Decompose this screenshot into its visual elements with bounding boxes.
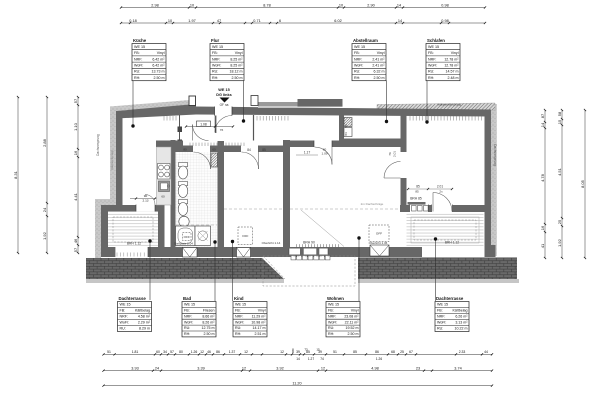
svg-text:6.42 m²: 6.42 m² xyxy=(152,64,165,68)
svg-text:2.50 m: 2.50 m xyxy=(348,332,359,336)
svg-text:8.66 m²: 8.66 m² xyxy=(202,314,215,318)
svg-text:FB:: FB: xyxy=(184,309,190,313)
svg-text:8.26 m²: 8.26 m² xyxy=(202,320,215,324)
svg-text:12: 12 xyxy=(242,366,246,370)
svg-text:Dachterrasse: Dachterrasse xyxy=(436,296,464,301)
svg-text:WE 15: WE 15 xyxy=(218,88,229,92)
svg-text:23.08 m²: 23.08 m² xyxy=(344,314,359,318)
svg-text:RH:: RH: xyxy=(134,76,140,80)
svg-text:2.41 m²: 2.41 m² xyxy=(372,64,385,68)
svg-text:Stellplatz 2.04: Stellplatz 2.04 xyxy=(174,242,193,246)
svg-text:BRH 1.12: BRH 1.12 xyxy=(445,241,459,245)
svg-text:3.39: 3.39 xyxy=(197,366,204,370)
svg-text:WoFl:: WoFl: xyxy=(235,320,244,324)
svg-text:RU:: RU: xyxy=(184,326,190,330)
svg-text:OFF: OFF xyxy=(242,234,248,238)
svg-text:WE 15: WE 15 xyxy=(328,303,339,307)
svg-text:2.29 m²: 2.29 m² xyxy=(138,321,151,325)
svg-text:51: 51 xyxy=(333,350,337,354)
svg-text:60: 60 xyxy=(212,148,216,152)
svg-text:RU:: RU: xyxy=(437,327,443,331)
svg-text:16: 16 xyxy=(540,225,545,230)
svg-text:23: 23 xyxy=(416,366,420,370)
svg-text:Vinyl: Vinyl xyxy=(258,309,266,313)
svg-text:3.13 m²: 3.13 m² xyxy=(455,321,468,325)
svg-text:Dachvorsprung: Dachvorsprung xyxy=(110,150,114,169)
svg-text:41: 41 xyxy=(540,243,545,248)
svg-text:WoFl:: WoFl: xyxy=(134,64,143,68)
svg-text:14: 14 xyxy=(398,19,402,23)
svg-text:85: 85 xyxy=(353,350,357,354)
svg-text:80: 80 xyxy=(183,148,187,152)
svg-text:BRH 1.12: BRH 1.12 xyxy=(127,242,141,246)
svg-text:67: 67 xyxy=(409,350,413,354)
svg-text:Bad: Bad xyxy=(183,296,191,301)
svg-text:3.93: 3.93 xyxy=(131,366,138,370)
svg-text:RH:: RH: xyxy=(328,332,334,336)
svg-text:24: 24 xyxy=(155,366,159,370)
svg-text:8.25 m²: 8.25 m² xyxy=(230,64,243,68)
svg-text:1.81: 1.81 xyxy=(132,350,139,354)
svg-text:57: 57 xyxy=(73,247,78,252)
svg-text:WE 15: WE 15 xyxy=(134,45,145,49)
svg-text:1.09: 1.09 xyxy=(321,152,327,156)
svg-text:14.57 m: 14.57 m xyxy=(446,70,459,74)
svg-text:2.98: 2.98 xyxy=(151,3,158,7)
svg-text:WoFl:: WoFl: xyxy=(328,320,337,324)
svg-text:2.48 m: 2.48 m xyxy=(448,76,459,80)
svg-text:4.98: 4.98 xyxy=(371,366,378,370)
svg-text:2.33: 2.33 xyxy=(459,350,466,354)
svg-text:NRF:: NRF: xyxy=(120,315,128,319)
svg-text:RH:: RH: xyxy=(184,332,190,336)
svg-text:FB:: FB: xyxy=(134,51,140,55)
svg-text:1.92: 1.92 xyxy=(42,231,47,240)
svg-text:WoFl:: WoFl: xyxy=(212,64,221,68)
svg-text:WE 15: WE 15 xyxy=(437,303,448,307)
svg-text:80: 80 xyxy=(179,350,183,354)
svg-text:RU:: RU: xyxy=(134,70,140,74)
svg-text:25: 25 xyxy=(400,350,404,354)
svg-text:84: 84 xyxy=(247,148,251,152)
svg-text:OFF: OFF xyxy=(376,232,382,236)
svg-text:WoFl:: WoFl: xyxy=(354,64,363,68)
svg-text:Kind: Kind xyxy=(234,296,244,301)
svg-text:74: 74 xyxy=(320,357,324,361)
svg-text:76: 76 xyxy=(220,128,224,132)
svg-text:11.29 m²: 11.29 m² xyxy=(252,314,267,318)
svg-text:RU:: RU: xyxy=(120,327,126,331)
svg-text:10.22 m: 10.22 m xyxy=(455,327,468,331)
svg-text:RH:: RH: xyxy=(212,76,218,80)
svg-text:BRH 90: BRH 90 xyxy=(303,240,315,244)
svg-text:Wohnen: Wohnen xyxy=(327,296,344,301)
svg-text:RU:: RU: xyxy=(235,326,241,330)
svg-text:Vinyl: Vinyl xyxy=(235,51,243,55)
svg-text:WE 15: WE 15 xyxy=(120,303,131,307)
svg-text:6.42 m²: 6.42 m² xyxy=(152,57,165,61)
svg-text:Fliesen: Fliesen xyxy=(203,309,215,313)
svg-text:NRF:: NRF: xyxy=(354,57,362,61)
svg-text:12.78 m²: 12.78 m² xyxy=(444,64,459,68)
svg-text:2.50 m: 2.50 m xyxy=(232,76,243,80)
svg-text:Vinyl: Vinyl xyxy=(451,51,459,55)
svg-text:8.78: 8.78 xyxy=(263,3,270,7)
svg-text:Oberlicht 1.14: Oberlicht 1.14 xyxy=(262,241,281,245)
svg-text:18.12 m: 18.12 m xyxy=(230,70,243,74)
svg-text:0.18: 0.18 xyxy=(129,19,136,23)
svg-text:NRF:: NRF: xyxy=(235,314,243,318)
svg-text:RH:: RH: xyxy=(354,76,360,80)
svg-text:1.97: 1.97 xyxy=(188,19,195,23)
svg-text:RU:: RU: xyxy=(354,70,360,74)
svg-text:FB:: FB: xyxy=(428,51,434,55)
svg-text:WoFl:: WoFl: xyxy=(437,321,446,325)
svg-text:68: 68 xyxy=(391,350,395,354)
svg-text:0.71: 0.71 xyxy=(253,19,260,23)
svg-text:84: 84 xyxy=(344,132,348,136)
svg-text:12: 12 xyxy=(244,350,248,354)
svg-text:34: 34 xyxy=(163,350,167,354)
svg-text:WoFl:: WoFl: xyxy=(120,321,129,325)
svg-text:4.51: 4.51 xyxy=(557,167,562,176)
svg-text:4.58 m²: 4.58 m² xyxy=(138,315,151,319)
svg-text:4.41: 4.41 xyxy=(73,192,78,201)
svg-text:Dachvorsprung: Dachvorsprung xyxy=(493,144,497,166)
svg-text:WoFl:: WoFl: xyxy=(428,64,437,68)
svg-text:Kältbelag: Kältbelag xyxy=(135,309,150,313)
svg-text:13.73 m: 13.73 m xyxy=(152,70,165,74)
svg-text:WE 15: WE 15 xyxy=(235,303,246,307)
svg-text:FB:: FB: xyxy=(235,309,241,313)
svg-text:85: 85 xyxy=(415,190,419,194)
svg-text:47: 47 xyxy=(217,19,221,23)
svg-text:14: 14 xyxy=(397,3,401,7)
svg-text:2.51 m: 2.51 m xyxy=(255,332,266,336)
svg-text:87: 87 xyxy=(540,113,545,118)
svg-text:8.31: 8.31 xyxy=(13,170,18,179)
svg-text:4.78: 4.78 xyxy=(540,173,545,182)
svg-text:NRF:: NRF: xyxy=(212,57,220,61)
svg-text:58: 58 xyxy=(557,111,562,116)
svg-text:86: 86 xyxy=(375,350,379,354)
svg-text:8.25 m²: 8.25 m² xyxy=(230,57,243,61)
svg-text:OFF: OFF xyxy=(184,235,190,239)
svg-text:60: 60 xyxy=(156,350,160,354)
svg-text:Dachterrasse: Dachterrasse xyxy=(119,296,147,301)
svg-text:DG links: DG links xyxy=(216,93,231,97)
svg-text:15: 15 xyxy=(557,119,562,124)
svg-text:44: 44 xyxy=(484,350,488,354)
svg-text:1.92: 1.92 xyxy=(557,238,562,247)
svg-text:51: 51 xyxy=(107,350,111,354)
svg-text:0.98: 0.98 xyxy=(441,19,448,23)
svg-text:12.75 m: 12.75 m xyxy=(202,326,215,330)
svg-text:1.17: 1.17 xyxy=(304,151,311,155)
svg-text:1.27: 1.27 xyxy=(308,357,314,361)
svg-text:NRF:: NRF: xyxy=(184,314,192,318)
svg-text:6: 6 xyxy=(279,19,281,23)
svg-text:FB:: FB: xyxy=(437,309,443,313)
svg-text:FB:: FB: xyxy=(212,51,218,55)
svg-text:12: 12 xyxy=(280,350,284,354)
svg-text:73: 73 xyxy=(304,348,308,352)
svg-text:1.37: 1.37 xyxy=(229,350,236,354)
svg-text:NRF:: NRF: xyxy=(428,57,436,61)
svg-text:2.50 m: 2.50 m xyxy=(374,76,385,80)
svg-text:2.13: 2.13 xyxy=(142,199,148,203)
svg-text:76: 76 xyxy=(388,152,392,156)
svg-text:Schlafen: Schlafen xyxy=(427,38,445,43)
svg-text:BRH 85: BRH 85 xyxy=(410,197,422,201)
svg-text:1.26: 1.26 xyxy=(376,357,382,361)
svg-text:RH:: RH: xyxy=(428,76,434,80)
svg-text:60: 60 xyxy=(161,195,165,199)
svg-text:24: 24 xyxy=(42,207,47,212)
svg-text:Vinyl: Vinyl xyxy=(377,51,385,55)
svg-text:WE 15: WE 15 xyxy=(184,303,195,307)
svg-text:NRF:: NRF: xyxy=(134,57,142,61)
svg-text:57: 57 xyxy=(170,350,174,354)
svg-text:RH:: RH: xyxy=(235,332,241,336)
svg-text:85: 85 xyxy=(262,148,266,152)
svg-text:2.50 m: 2.50 m xyxy=(154,76,165,80)
svg-text:11.20: 11.20 xyxy=(292,381,301,385)
svg-text:6.02: 6.02 xyxy=(334,19,341,23)
svg-text:2x: 2x xyxy=(439,190,443,194)
svg-text:OF na: OF na xyxy=(220,103,229,107)
svg-text:10: 10 xyxy=(190,3,194,7)
svg-text:WE 15: WE 15 xyxy=(212,45,223,49)
svg-text:WE 15: WE 15 xyxy=(354,45,365,49)
svg-text:50: 50 xyxy=(344,124,348,128)
svg-text:1.08: 1.08 xyxy=(200,122,207,126)
svg-text:6.32 m: 6.32 m xyxy=(374,70,385,74)
svg-text:1.10: 1.10 xyxy=(73,122,78,131)
svg-text:57: 57 xyxy=(73,98,78,103)
svg-text:16: 16 xyxy=(73,150,78,155)
svg-text:2.90: 2.90 xyxy=(367,3,374,7)
svg-text:WoFl:: WoFl: xyxy=(184,320,193,324)
svg-text:14: 14 xyxy=(296,357,300,361)
svg-text:FB:: FB: xyxy=(120,309,126,313)
svg-text:8.05: 8.05 xyxy=(580,179,585,188)
svg-text:3.74: 3.74 xyxy=(454,366,461,370)
svg-text:46: 46 xyxy=(73,238,78,243)
svg-text:12: 12 xyxy=(200,350,204,354)
svg-text:NRF:: NRF: xyxy=(328,314,336,318)
svg-text:Oberlicht 1.36: Oberlicht 1.36 xyxy=(369,241,388,245)
svg-text:14.17 m: 14.17 m xyxy=(253,326,266,330)
svg-text:NRF:: NRF: xyxy=(437,315,445,319)
svg-text:14: 14 xyxy=(540,122,545,127)
svg-text:Flur: Flur xyxy=(211,38,219,43)
svg-text:2.41 m²: 2.41 m² xyxy=(372,57,385,61)
svg-text:12: 12 xyxy=(321,366,325,370)
svg-text:RU:: RU: xyxy=(428,70,434,74)
svg-text:0.98: 0.98 xyxy=(441,3,448,7)
svg-text:Vinyl: Vinyl xyxy=(157,51,165,55)
svg-text:Abstellraum: Abstellraum xyxy=(353,38,378,43)
svg-text:1.26: 1.26 xyxy=(191,350,198,354)
svg-text:22.11 m²: 22.11 m² xyxy=(345,320,360,324)
svg-text:RU:: RU: xyxy=(328,326,334,330)
svg-text:WE 15: WE 15 xyxy=(428,45,439,49)
svg-text:Vinyl: Vinyl xyxy=(351,309,359,313)
svg-text:86: 86 xyxy=(216,350,220,354)
svg-text:8.29 m: 8.29 m xyxy=(139,327,150,331)
svg-text:10: 10 xyxy=(339,3,343,7)
svg-text:85: 85 xyxy=(416,185,420,189)
svg-text:19.52 m: 19.52 m xyxy=(346,326,359,330)
svg-text:6.26 m²: 6.26 m² xyxy=(455,315,468,319)
svg-text:15: 15 xyxy=(316,348,320,352)
svg-text:Attikaverblechung: Attikaverblechung xyxy=(437,103,461,107)
svg-text:Dachvorsprung: Dachvorsprung xyxy=(96,134,100,156)
svg-text:2.01: 2.01 xyxy=(393,151,397,157)
svg-text:Kältbelag: Kältbelag xyxy=(453,309,468,313)
svg-text:39: 39 xyxy=(296,350,300,354)
svg-text:10.98 m²: 10.98 m² xyxy=(251,320,266,324)
svg-text:2.01: 2.01 xyxy=(437,185,443,189)
svg-text:2.88: 2.88 xyxy=(42,138,47,147)
svg-text:2.50 m: 2.50 m xyxy=(204,332,215,336)
svg-text:12.78 m²: 12.78 m² xyxy=(444,57,459,61)
svg-text:25: 25 xyxy=(557,219,562,224)
svg-text:2m Dachschräge: 2m Dachschräge xyxy=(361,202,384,206)
svg-text:RU:: RU: xyxy=(212,70,218,74)
svg-text:46: 46 xyxy=(207,350,211,354)
svg-text:10: 10 xyxy=(168,19,172,23)
svg-text:FB:: FB: xyxy=(328,309,334,313)
svg-text:FB:: FB: xyxy=(354,51,360,55)
svg-text:Küche: Küche xyxy=(133,38,147,43)
svg-text:3.92: 3.92 xyxy=(276,366,283,370)
